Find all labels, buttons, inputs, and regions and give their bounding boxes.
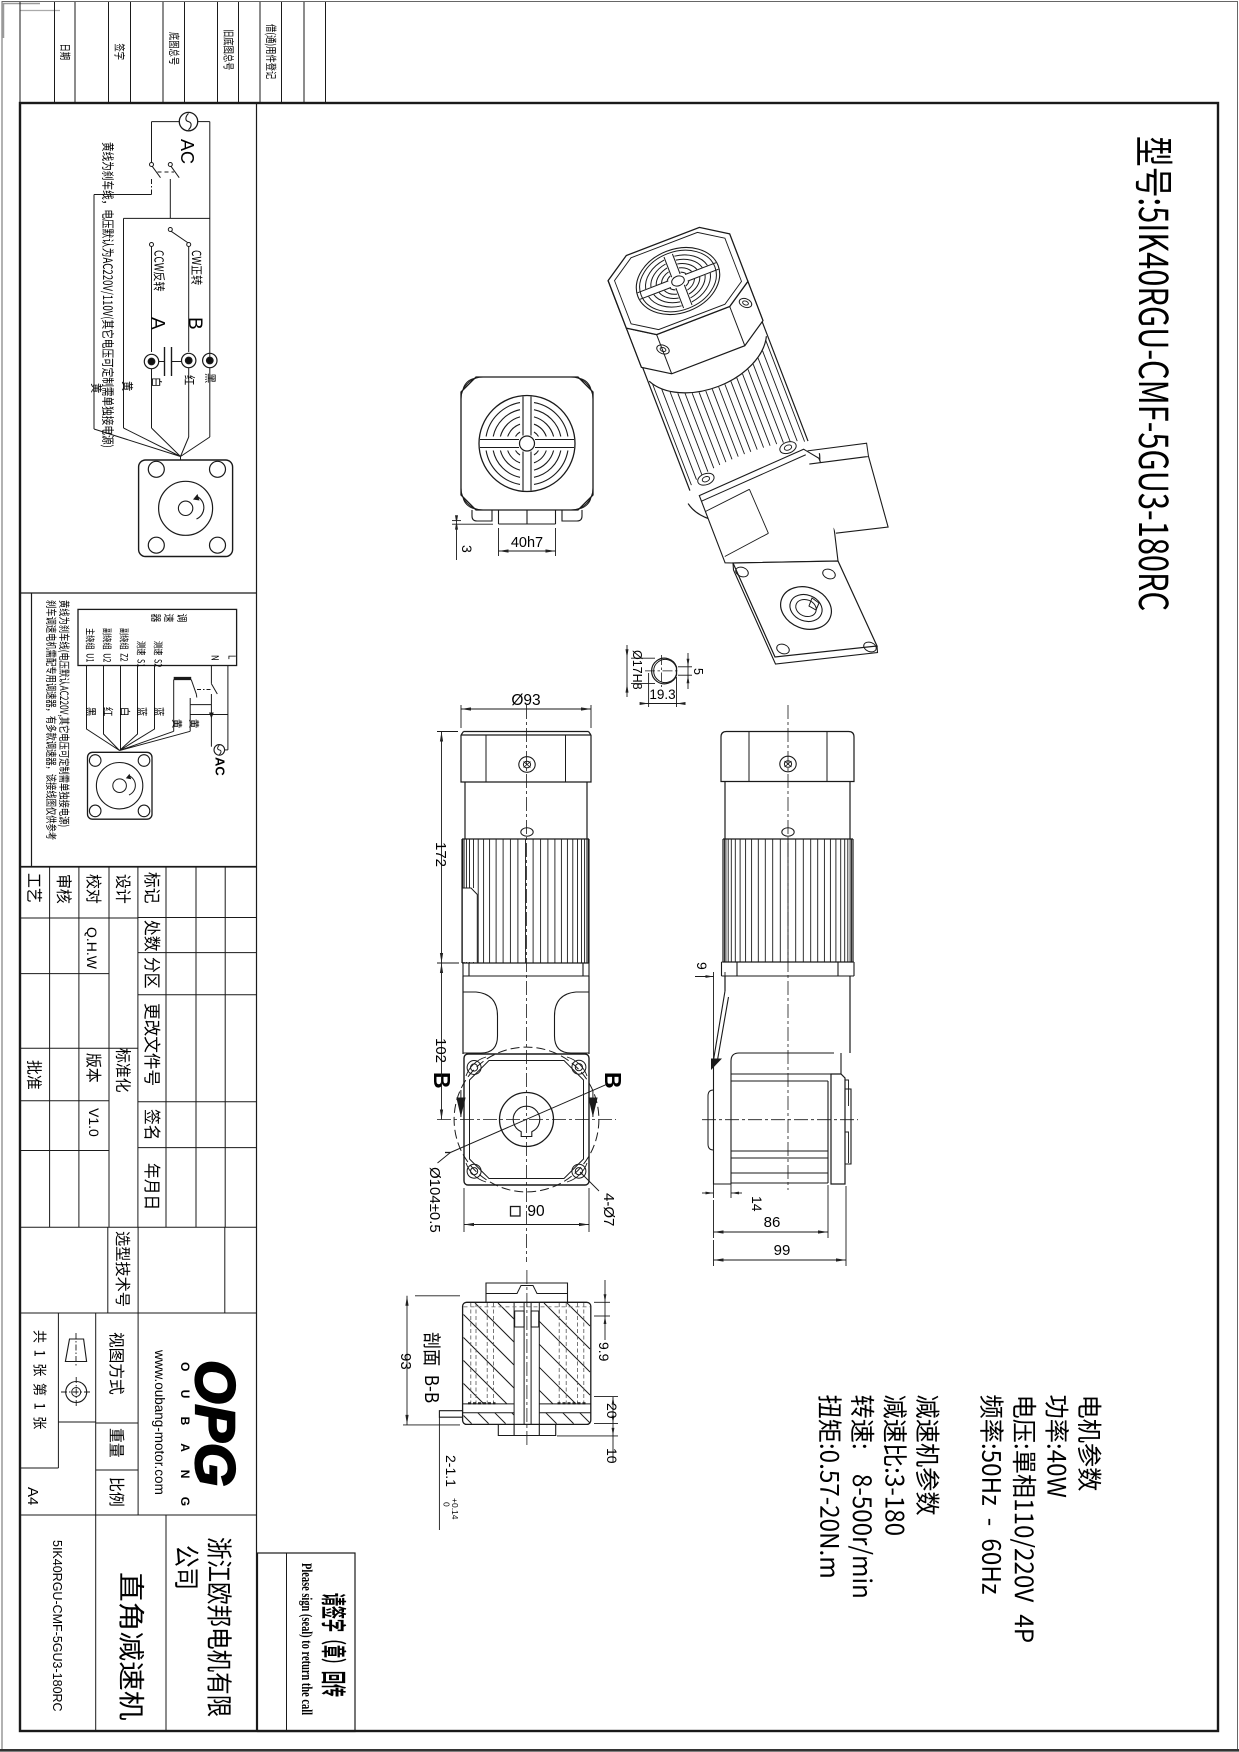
svg-text:Please sign (seal) to return t: Please sign (seal) to return the call — [298, 1563, 314, 1715]
svg-text:Ø93: Ø93 — [511, 692, 540, 709]
svg-text:Q.H.W: Q.H.W — [84, 927, 100, 970]
svg-text:14: 14 — [749, 1196, 765, 1212]
svg-text:86: 86 — [764, 1214, 781, 1231]
svg-text:B: B — [184, 317, 205, 330]
svg-text:102: 102 — [432, 1038, 449, 1063]
svg-text:93: 93 — [397, 1353, 414, 1370]
svg-text:A: A — [147, 317, 168, 330]
svg-text:9: 9 — [694, 962, 710, 970]
svg-text:2-1.1: 2-1.1 — [443, 1455, 459, 1487]
svg-text:www.oubang-motor.com: www.oubang-motor.com — [152, 1349, 167, 1495]
svg-text:10: 10 — [604, 1448, 620, 1464]
svg-text:3: 3 — [459, 545, 475, 553]
svg-text:5: 5 — [691, 668, 705, 675]
svg-text:AC: AC — [177, 139, 197, 164]
svg-text:Ø104±0.5: Ø104±0.5 — [426, 1167, 443, 1233]
svg-text:B: B — [600, 1072, 626, 1089]
svg-text:5IK40RGU-CMF-5GU3-180RC: 5IK40RGU-CMF-5GU3-180RC — [50, 1540, 64, 1712]
svg-text:172: 172 — [432, 842, 449, 867]
svg-text:AC: AC — [213, 757, 228, 776]
svg-text:4-Ø7: 4-Ø7 — [600, 1193, 617, 1226]
svg-text:V1.0: V1.0 — [86, 1108, 102, 1137]
svg-text:Ø17H8: Ø17H8 — [630, 650, 644, 690]
svg-text:0: 0 — [442, 1502, 452, 1507]
svg-text:B: B — [429, 1072, 455, 1089]
svg-text:A4: A4 — [24, 1487, 41, 1505]
svg-text:99: 99 — [774, 1242, 791, 1259]
svg-text:40h7: 40h7 — [511, 535, 543, 551]
svg-text:9.9: 9.9 — [596, 1342, 612, 1362]
svg-text:19.3: 19.3 — [649, 687, 675, 702]
svg-text:90: 90 — [527, 1203, 545, 1220]
svg-text:OPG: OPG — [184, 1360, 247, 1487]
svg-text:20: 20 — [604, 1403, 620, 1419]
